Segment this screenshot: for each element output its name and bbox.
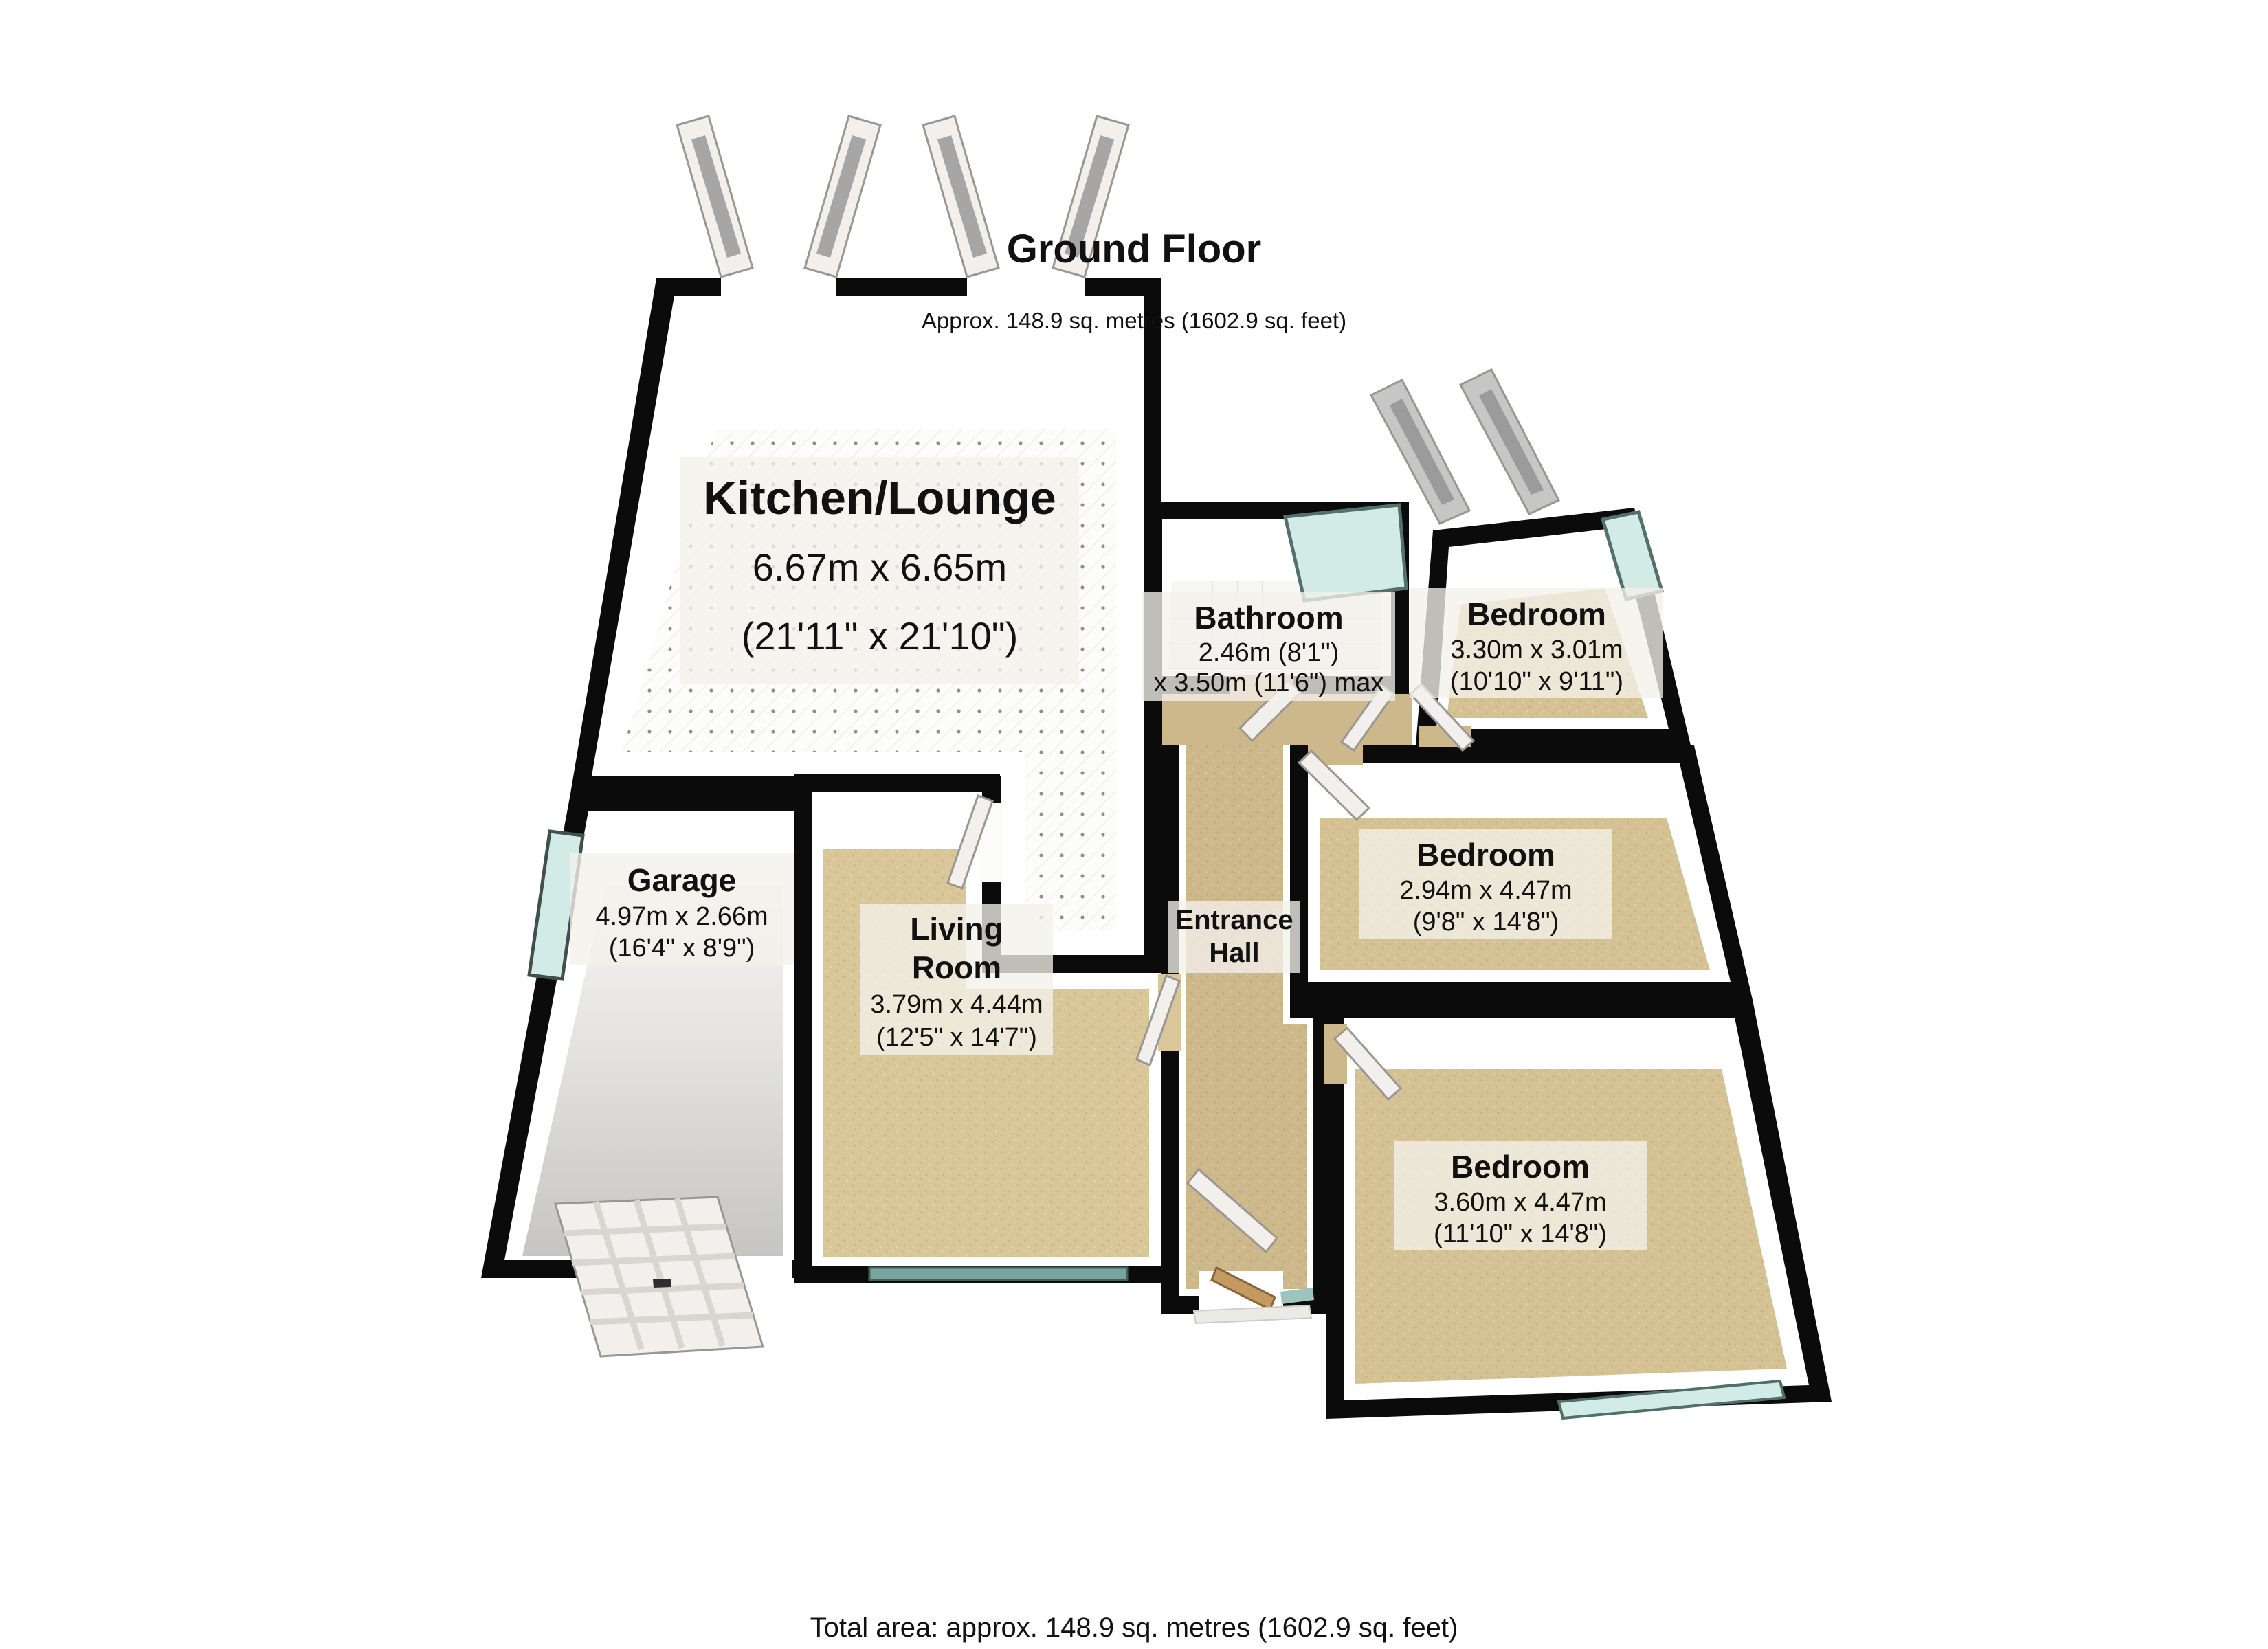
bathroom-window-icon: [1285, 505, 1406, 601]
garage-dims-metric: 4.97m x 2.66m: [595, 902, 768, 931]
bathroom-dims-imperial: x 3.50m (11'6") max: [1154, 669, 1384, 697]
living-dims-metric: 3.79m x 4.44m: [870, 990, 1043, 1019]
living-label: Living Room 3.79m x 4.44m (12'5" x 14'7"…: [860, 904, 1053, 1055]
hall-label: Entrance Hall: [1168, 901, 1300, 973]
bedroom-bottom-name: Bedroom: [1451, 1149, 1590, 1185]
kitchen-name: Kitchen/Lounge: [703, 472, 1056, 524]
bathroom-label: Bathroom 2.46m (8'1") x 3.50m (11'6") ma…: [1142, 592, 1395, 701]
living-dims-imperial: (12'5" x 14'7"): [876, 1023, 1037, 1052]
bedroom-bottom-dims-imperial: (11'10" x 14'8"): [1434, 1220, 1607, 1248]
bedroom-middle-label: Bedroom 2.94m x 4.47m (9'8" x 14'8"): [1359, 829, 1612, 939]
bathroom-dims-metric: 2.46m (8'1"): [1199, 638, 1339, 667]
hall-name-line2: Hall: [1209, 938, 1259, 968]
floorplan-canvas: Kitchen/Lounge 6.67m x 6.65m (21'11" x 2…: [0, 0, 2268, 1649]
living-name-line1: Living: [910, 911, 1003, 947]
living-window-icon: [869, 1268, 1127, 1280]
bedroom-top-dims-imperial: (10'10" x 9'11"): [1450, 667, 1623, 696]
floorplan-page: Kitchen/Lounge 6.67m x 6.65m (21'11" x 2…: [0, 0, 2268, 1649]
page-title: Ground Floor: [1007, 227, 1262, 271]
bedroom-top-open-window-icon: [1371, 370, 1559, 524]
bedroom-bottom-dims-metric: 3.60m x 4.47m: [1434, 1188, 1606, 1217]
page-subtitle: Approx. 148.9 sq. metres (1602.9 sq. fee…: [922, 308, 1346, 333]
bedroom-top-name: Bedroom: [1467, 596, 1606, 632]
living-name-line2: Room: [912, 950, 1001, 985]
kitchen-patio-opening-right: [967, 273, 1085, 302]
garage-dims-imperial: (16'4" x 8'9"): [609, 934, 755, 963]
garage-label: Garage 4.97m x 2.66m (16'4" x 8'9"): [570, 853, 794, 965]
bedroom-top-dims-metric: 3.30m x 3.01m: [1450, 636, 1623, 664]
bedroom-middle-dims-metric: 2.94m x 4.47m: [1399, 876, 1572, 905]
kitchen-patio-opening-left: [721, 273, 836, 302]
bedroom-bottom-label: Bedroom 3.60m x 4.47m (11'10" x 14'8"): [1394, 1141, 1647, 1250]
bedroom-middle-dims-imperial: (9'8" x 14'8"): [1413, 908, 1559, 936]
kitchen-dims-imperial: (21'11" x 21'10"): [742, 614, 1019, 658]
bathroom-name: Bathroom: [1194, 600, 1343, 636]
kitchen-dims-metric: 6.67m x 6.65m: [753, 546, 1007, 589]
bedroom-middle-name: Bedroom: [1416, 837, 1555, 873]
hall-name-line1: Entrance: [1175, 905, 1293, 935]
garage-name: Garage: [627, 862, 737, 898]
bedroom-top-label: Bedroom 3.30m x 3.01m (10'10" x 9'11"): [1410, 588, 1663, 698]
total-area-text: Total area: approx. 148.9 sq. metres (16…: [810, 1613, 1458, 1643]
kitchen-label: Kitchen/Lounge 6.67m x 6.65m (21'11" x 2…: [680, 457, 1079, 684]
